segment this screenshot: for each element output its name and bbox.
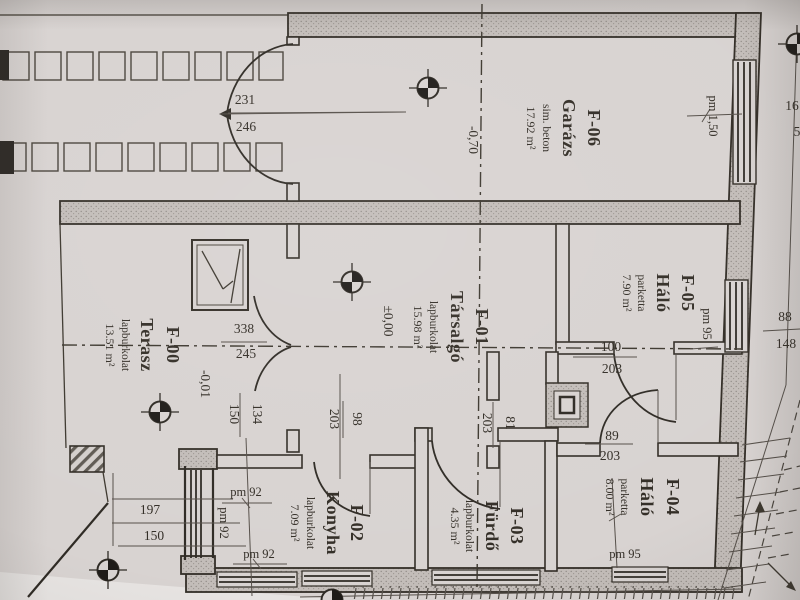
skylight-symbol [192, 240, 248, 310]
chimney-symbol [546, 383, 588, 427]
dim-kitchen-step-h: 150 [144, 528, 165, 543]
floorplan-drawing: F-06 Garázs sim. beton 17.92 m² F-05 Hál… [0, 0, 800, 600]
dim-edge-a: 16 [785, 98, 799, 113]
survey-marker-icon [333, 263, 371, 301]
section-line-vertical [477, 4, 482, 590]
dim-pm-kitchen-3: pm 92 [243, 547, 275, 561]
leader-arrow [768, 563, 796, 591]
level-mark-garage: -0,70 [466, 126, 481, 154]
room-id: F-06 [584, 110, 604, 147]
dim-kitchen-door-h: 203 [327, 409, 342, 430]
paving-row-2 [0, 143, 282, 171]
room-label-garage: F-06 Garázs sim. beton 17.92 m² [524, 99, 604, 157]
dim-garage-door-w: 231 [235, 92, 255, 107]
ground-hatch [348, 586, 738, 599]
room-name: Terasz [137, 318, 157, 371]
dim-terrace-step-h: 150 [227, 404, 242, 425]
dim-pm-kitchen-1: pm 92 [230, 485, 262, 499]
dim-bed4-door-h: 203 [600, 448, 621, 463]
dark-paver [0, 50, 9, 80]
wall-top [288, 13, 758, 37]
dim-edge-b: 5 [794, 124, 800, 139]
room-floor: parketta [618, 478, 630, 515]
dim-pm-kitchen-2: pm 92 [217, 507, 231, 539]
dim-kitchen-door-w: 98 [350, 412, 365, 426]
dim-terrace-step-w: 134 [250, 404, 265, 425]
room-floor: lapburkolat [119, 319, 131, 372]
room-label-kitchen: F-02 Konyha lapburkolat 7.09 m² [288, 491, 367, 555]
dim-bed5-door-h: 203 [602, 361, 623, 376]
survey-marker-icon [778, 25, 800, 63]
survey-marker-icon [141, 393, 179, 431]
room-area: 7.09 m² [288, 505, 302, 542]
dim-terrace-step: 134 150 [227, 404, 265, 425]
dim-pm-bed5: pm 95 [700, 308, 714, 340]
level-mark-lounge: ±0,00 [381, 305, 396, 336]
room-area: 13.51 m² [103, 324, 117, 367]
floorplan-photo: F-06 Garázs sim. beton 17.92 m² F-05 Hál… [0, 0, 800, 600]
level-value: -0,01 [198, 370, 213, 398]
dim-pm-value: pm 95 [700, 308, 714, 340]
dark-paver [0, 141, 14, 174]
room-name: Garázs [559, 99, 579, 157]
room-name: Háló [637, 477, 657, 516]
dim-bed4-door-w: 89 [605, 428, 619, 443]
dim-garage-door-h: 246 [236, 119, 257, 134]
room-floor: lapburkolat [463, 500, 475, 553]
dim-hall-door-h: 203 [480, 413, 495, 434]
dim-pm-value: pm 1,50 [706, 96, 720, 137]
garage-window [733, 60, 756, 184]
room-label-lounge: F-01 Társalgó lapburkolat 15.98 m² [411, 291, 492, 363]
room-label-bath: F-03 Fürdő lapburkolat 4.35 m² [448, 500, 527, 553]
terrace-pillar [70, 446, 104, 472]
kitchen-window [191, 470, 201, 558]
room-name: Társalgó [447, 291, 467, 363]
level-mark-terrace: -0,01 [198, 370, 213, 398]
level-value: ±0,00 [381, 305, 396, 336]
dim-bed5-door-w: 100 [601, 339, 622, 354]
dim-wall-seg-h: 148 [776, 336, 797, 351]
room-floor: lapburkolat [427, 301, 439, 354]
room-floor: lapburkolat [304, 497, 316, 550]
room-name: Fürdő [482, 501, 502, 552]
room-id: F-02 [347, 505, 367, 542]
bedroom5-window [725, 280, 748, 352]
room-area: 17.92 m² [524, 107, 538, 150]
room-floor: sim. beton [540, 104, 552, 152]
dim-pm-bed4: pm 95 [609, 547, 641, 561]
level-value: -0,70 [466, 126, 481, 154]
dim-pm-garage: pm 1,50 [706, 96, 720, 137]
terrace-door-arc [254, 296, 291, 391]
room-label-bedroom5: F-05 Háló parketta 7.90 m² [620, 273, 698, 312]
dim-pm-value: pm 92 [217, 507, 231, 539]
room-area: 7.90 m² [620, 275, 634, 312]
room-label-terrace: F-00 Terasz lapburkolat 13.51 m² [103, 318, 183, 372]
room-id: F-04 [663, 479, 683, 516]
bedroom5-door-arc [614, 354, 676, 422]
room-area: 15.98 m² [411, 306, 425, 349]
dim-terrace-door-w: 338 [234, 321, 255, 336]
dim-wall-seg-w: 88 [778, 309, 792, 324]
room-name: Konyha [323, 491, 343, 555]
room-id: F-00 [163, 327, 183, 364]
room-id: F-05 [678, 275, 698, 312]
room-area: 8.00 m² [603, 479, 617, 516]
dim-hall-door-w: 81 [503, 416, 518, 430]
room-name: Háló [653, 273, 673, 312]
dim-kitchen-step-w: 197 [140, 502, 161, 517]
dim-kitchen-door: 98 203 [327, 409, 365, 430]
room-label-bedroom4: F-04 Háló parketta 8.00 m² [603, 477, 683, 516]
survey-marker-icon [409, 69, 447, 107]
dim-terrace-door-h: 245 [236, 346, 257, 361]
room-floor: parketta [635, 274, 647, 311]
wall-middle [60, 201, 740, 224]
room-id: F-01 [472, 309, 492, 346]
room-area: 4.35 m² [448, 508, 462, 545]
room-id: F-03 [507, 508, 527, 545]
